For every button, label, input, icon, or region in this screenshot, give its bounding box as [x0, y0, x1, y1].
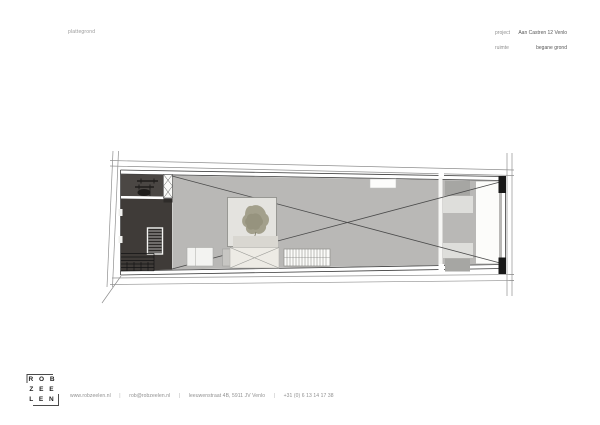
- logo-letters: R O B Z E E L E N: [22, 368, 63, 411]
- contact-line: www.robzeelen.nl | rob@robzeelen.nl | le…: [70, 393, 334, 399]
- void-shaft-hatch: [164, 175, 173, 199]
- right-zone-light-bottom: [443, 243, 473, 258]
- drawing-sheet: plattegrond project Aan Castren 12 Venlo…: [0, 0, 600, 425]
- logo: R O B Z E E L E N: [22, 368, 63, 411]
- website: www.robzeelen.nl: [70, 393, 111, 399]
- logo-row-3: L E N: [29, 396, 56, 404]
- right-zone-light-top: [443, 196, 473, 213]
- separator: |: [179, 393, 180, 399]
- bench-backdrop: [233, 236, 278, 248]
- separator: |: [119, 393, 120, 399]
- floor-plan-drawing: [0, 0, 600, 425]
- phone: +31 (0) 6 13 14 17 38: [284, 393, 334, 399]
- logo-row-2: Z E E: [29, 386, 55, 394]
- email: rob@robzeelen.nl: [129, 393, 170, 399]
- wall-gap-strip: [439, 177, 443, 265]
- separator: |: [274, 393, 275, 399]
- top-wall-opening: [439, 171, 445, 178]
- logo-row-1: R O B: [28, 376, 56, 384]
- sideboard: [187, 248, 213, 267]
- corridor: [476, 182, 499, 264]
- bottom-stairs: [284, 249, 330, 266]
- stair-shaft: [148, 228, 163, 254]
- bottom-wall-opening: [439, 264, 445, 271]
- address: leeuwenstraat 4B, 5911 JV Venlo: [189, 393, 265, 399]
- table-with-cross: [230, 248, 279, 269]
- right-zone-block-bottom: [445, 259, 470, 272]
- wall-notch: [370, 179, 396, 188]
